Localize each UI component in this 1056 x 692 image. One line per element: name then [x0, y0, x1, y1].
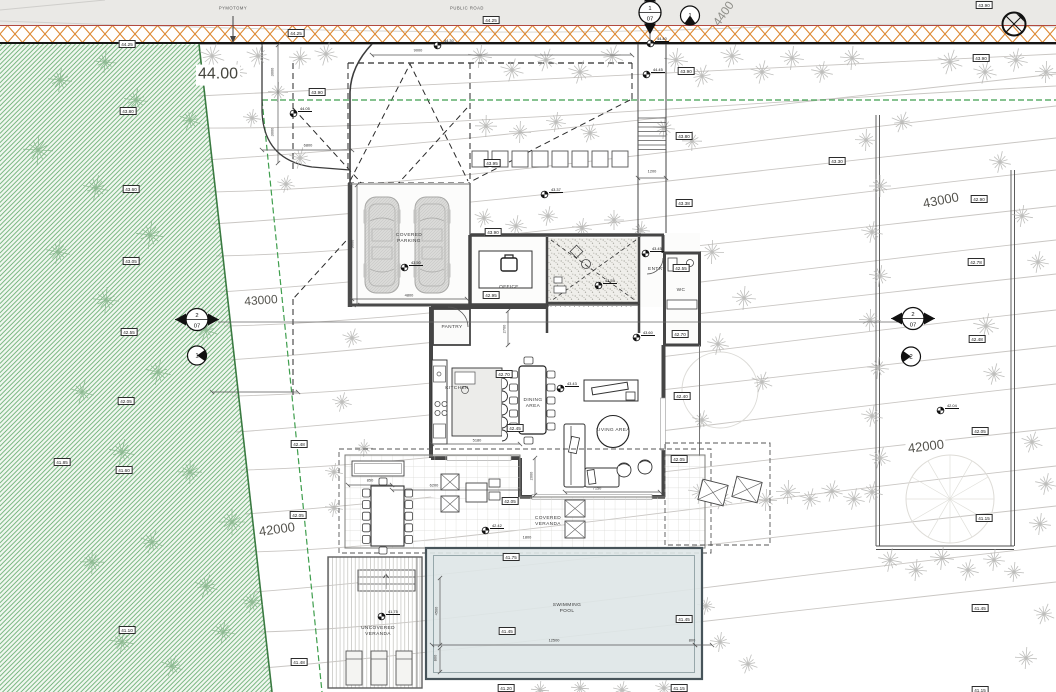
section-marker: 107: [627, 0, 673, 41]
contour-label: 43000: [242, 292, 280, 310]
spot-elevation-value: 43.43: [565, 381, 579, 387]
elevation-marker: 43.30: [829, 157, 846, 165]
benchmark-icon: [936, 406, 945, 415]
spot-elevation-value: 42.42: [490, 523, 504, 529]
room-label: UNCOVERED VERANDA: [361, 626, 395, 638]
spot-elevation-value: 43.60: [641, 330, 655, 336]
dimension-label: 9000: [414, 47, 423, 52]
section-number: 2: [911, 312, 914, 318]
benchmark-icon: [481, 526, 490, 535]
detail-marker: 2: [896, 342, 926, 377]
section-sheet: 07: [647, 17, 653, 23]
elevation-marker: 41.45: [972, 604, 989, 612]
elevation-marker: 42.55: [121, 328, 138, 336]
elevation-marker: 41.85: [54, 458, 71, 466]
benchmark-icon: [556, 384, 565, 393]
dimension-label: 6200: [430, 482, 439, 487]
road-label-public-road: PUBLIC ROAD: [450, 5, 484, 10]
room-label: OFFICE: [499, 285, 519, 291]
elevation-marker: 41.75: [503, 553, 520, 561]
elevation-marker: 42.48: [291, 440, 308, 448]
elevation-marker: 41.10: [119, 626, 136, 634]
elevation-marker: 42.95: [483, 291, 500, 299]
elevation-marker: 41.60: [116, 466, 133, 474]
elevation-marker: 42.45: [507, 424, 524, 432]
spot-elevation-value: 44.30: [442, 38, 456, 44]
benchmark-icon: [377, 612, 386, 621]
contour-label: 4400: [709, 0, 739, 31]
elevation-marker: 42.55: [673, 264, 690, 272]
elevation-marker: 43.90: [309, 88, 326, 96]
labels-layer: PYMOTOMY PUBLIC ROAD 44.2544.2544.2543.9…: [0, 0, 1056, 692]
dimension-label: 800: [689, 637, 696, 642]
elevation-marker: 42.40: [674, 392, 691, 400]
dimension-label: 850: [367, 477, 374, 482]
spot-elevation-value: 43.50: [409, 260, 423, 266]
benchmark-icon: [433, 41, 442, 50]
detail-marker: 1: [182, 341, 212, 376]
room-label: COVERED VERANDA: [535, 516, 561, 528]
elevation-marker: 44.25: [483, 16, 500, 24]
room-label: LIVING AREA: [596, 428, 630, 434]
room-label: WC: [677, 288, 686, 294]
elevation-marker: 43.90: [485, 228, 502, 236]
room-label: PANTRY: [441, 325, 462, 331]
elevation-marker: 43.90: [678, 67, 695, 75]
dimension-label: 2000: [528, 472, 533, 481]
room-label: SWIMMING POOL: [553, 603, 581, 615]
dimension-label: 3000: [269, 68, 274, 77]
section-sheet: 07: [194, 324, 200, 330]
elevation-marker: 43.60: [123, 185, 140, 193]
contour-label: 44.00: [196, 65, 240, 86]
elevation-marker: 41.45: [676, 615, 693, 623]
elevation-marker: 43.95: [484, 159, 501, 167]
section-number: 1: [648, 6, 651, 12]
room-label: COVERED PARKING: [396, 233, 422, 245]
elevation-marker: 41.20: [498, 684, 515, 692]
elevation-marker: 41.15: [972, 686, 989, 692]
dimension-label: 1200: [648, 168, 657, 173]
elevation-marker: 42.78: [968, 258, 985, 266]
spot-elevation-value: 43.37: [549, 187, 563, 193]
dimension-label: 12500: [549, 637, 560, 642]
benchmark-icon: [289, 109, 298, 118]
benchmark-icon: [632, 333, 641, 342]
site-plan-canvas: PYMOTOMY PUBLIC ROAD 44.2544.2544.2543.9…: [0, 0, 1056, 692]
room-label: ENTRY: [648, 267, 666, 273]
elevation-marker: 41.15: [976, 514, 993, 522]
dimension-label: 2700: [501, 325, 506, 334]
elevation-marker: 42.70: [672, 330, 689, 338]
elevation-marker: 43.38: [676, 199, 693, 207]
dimension-label: 3000: [269, 128, 274, 137]
elevation-marker: 44.25: [288, 29, 305, 37]
elevation-marker: 44.25: [119, 40, 136, 48]
elevation-marker: 42.05: [290, 511, 307, 519]
elevation-marker: 42.05: [671, 455, 688, 463]
elevation-marker: 42.05: [118, 397, 135, 405]
spot-elevation-value: 44.45: [651, 67, 665, 73]
elevation-marker: 41.48: [291, 658, 308, 666]
elevation-marker: 41.15: [671, 684, 688, 692]
elevation-marker: 42.05: [502, 497, 519, 505]
dimension-label: 9000: [349, 240, 354, 249]
spot-elevation-value: 41.75: [386, 609, 400, 615]
dimension-label: 7150: [593, 485, 602, 490]
elevation-marker: 43.90: [973, 54, 990, 62]
contour-label: 42000: [905, 436, 947, 458]
detail-marker: 1: [675, 1, 705, 36]
elevation-marker: 42.70: [496, 370, 513, 378]
section-sheet: 07: [910, 323, 916, 329]
spot-elevation-value: 43.45: [650, 246, 664, 252]
section-marker: 207: [890, 296, 936, 347]
elevation-marker: 42.90: [971, 195, 988, 203]
spot-elevation-value: 43.55: [603, 278, 617, 284]
elevation-marker: 43.05: [123, 257, 140, 265]
elevation-marker: 41.45: [499, 627, 516, 635]
contour-label: 42000: [256, 519, 298, 541]
elevation-marker: 42.48: [969, 335, 986, 343]
road-label-pymotomy: PYMOTOMY: [219, 5, 247, 10]
section-number: 2: [195, 313, 198, 319]
room-label: KITCHEN: [445, 386, 469, 392]
elevation-marker: 43.90: [976, 1, 993, 9]
elevation-marker: 43.80: [120, 107, 137, 115]
dimension-label: 6800: [304, 142, 313, 147]
elevation-marker: 43.80: [676, 132, 693, 140]
benchmark-icon: [540, 190, 549, 199]
dimension-label: 1800: [523, 534, 532, 539]
dimension-label: 800: [432, 655, 437, 662]
benchmark-icon: [641, 249, 650, 258]
dimension-label: 5180: [473, 437, 482, 442]
dimension-label: 4800: [405, 292, 414, 297]
dimension-label: 4500: [433, 607, 438, 616]
spot-elevation-value: 44.05: [298, 106, 312, 112]
spot-elevation-value: 42.04: [945, 403, 959, 409]
contour-label: 43000: [920, 189, 963, 213]
benchmark-icon: [642, 70, 651, 79]
room-label: DINING AREA: [524, 398, 543, 410]
benchmark-icon: [594, 281, 603, 290]
benchmark-icon: [400, 263, 409, 272]
elevation-marker: 42.05: [972, 427, 989, 435]
